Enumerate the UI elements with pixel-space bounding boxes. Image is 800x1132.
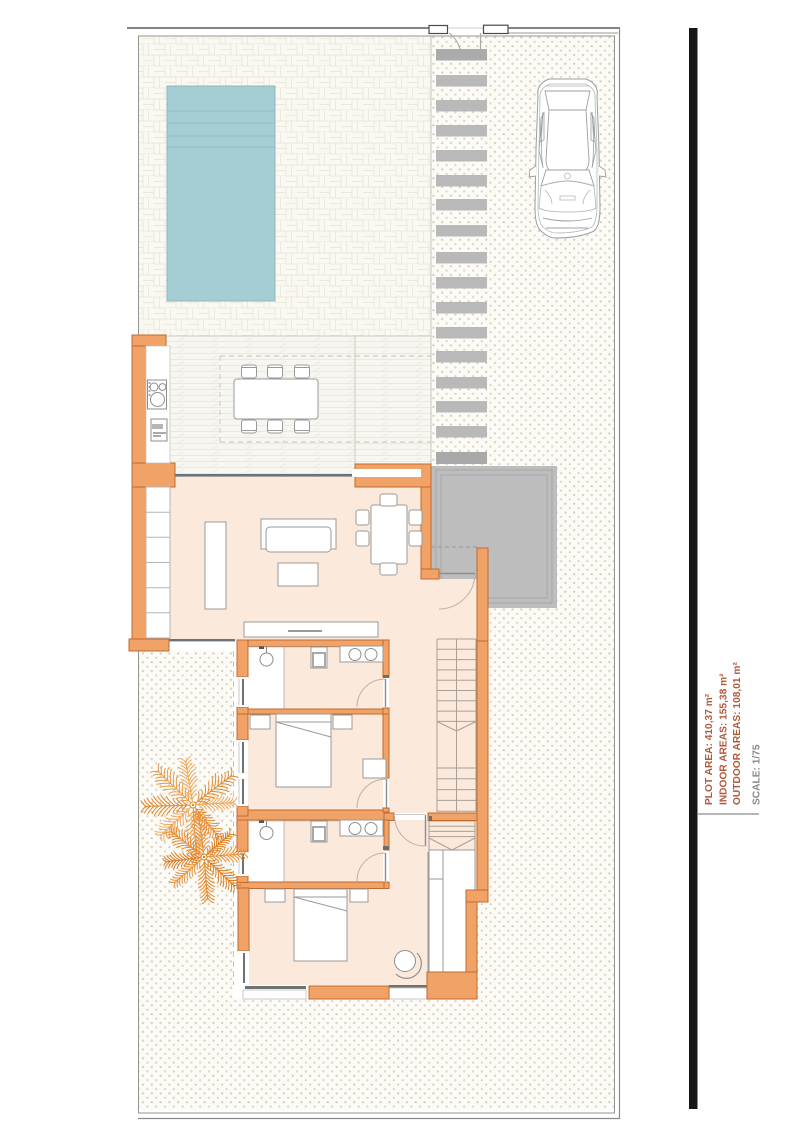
svg-text:SCALE: 1/75: SCALE: 1/75 [752, 744, 763, 805]
svg-text:OUTDOOR AREAS: 108,01 m²: OUTDOOR AREAS: 108,01 m² [732, 662, 743, 805]
svg-text:PLOT AREA: 410,37 m²: PLOT AREA: 410,37 m² [704, 693, 715, 805]
svg-text:INDOOR AREAS: 155,38 m²: INDOOR AREAS: 155,38 m² [719, 673, 730, 805]
